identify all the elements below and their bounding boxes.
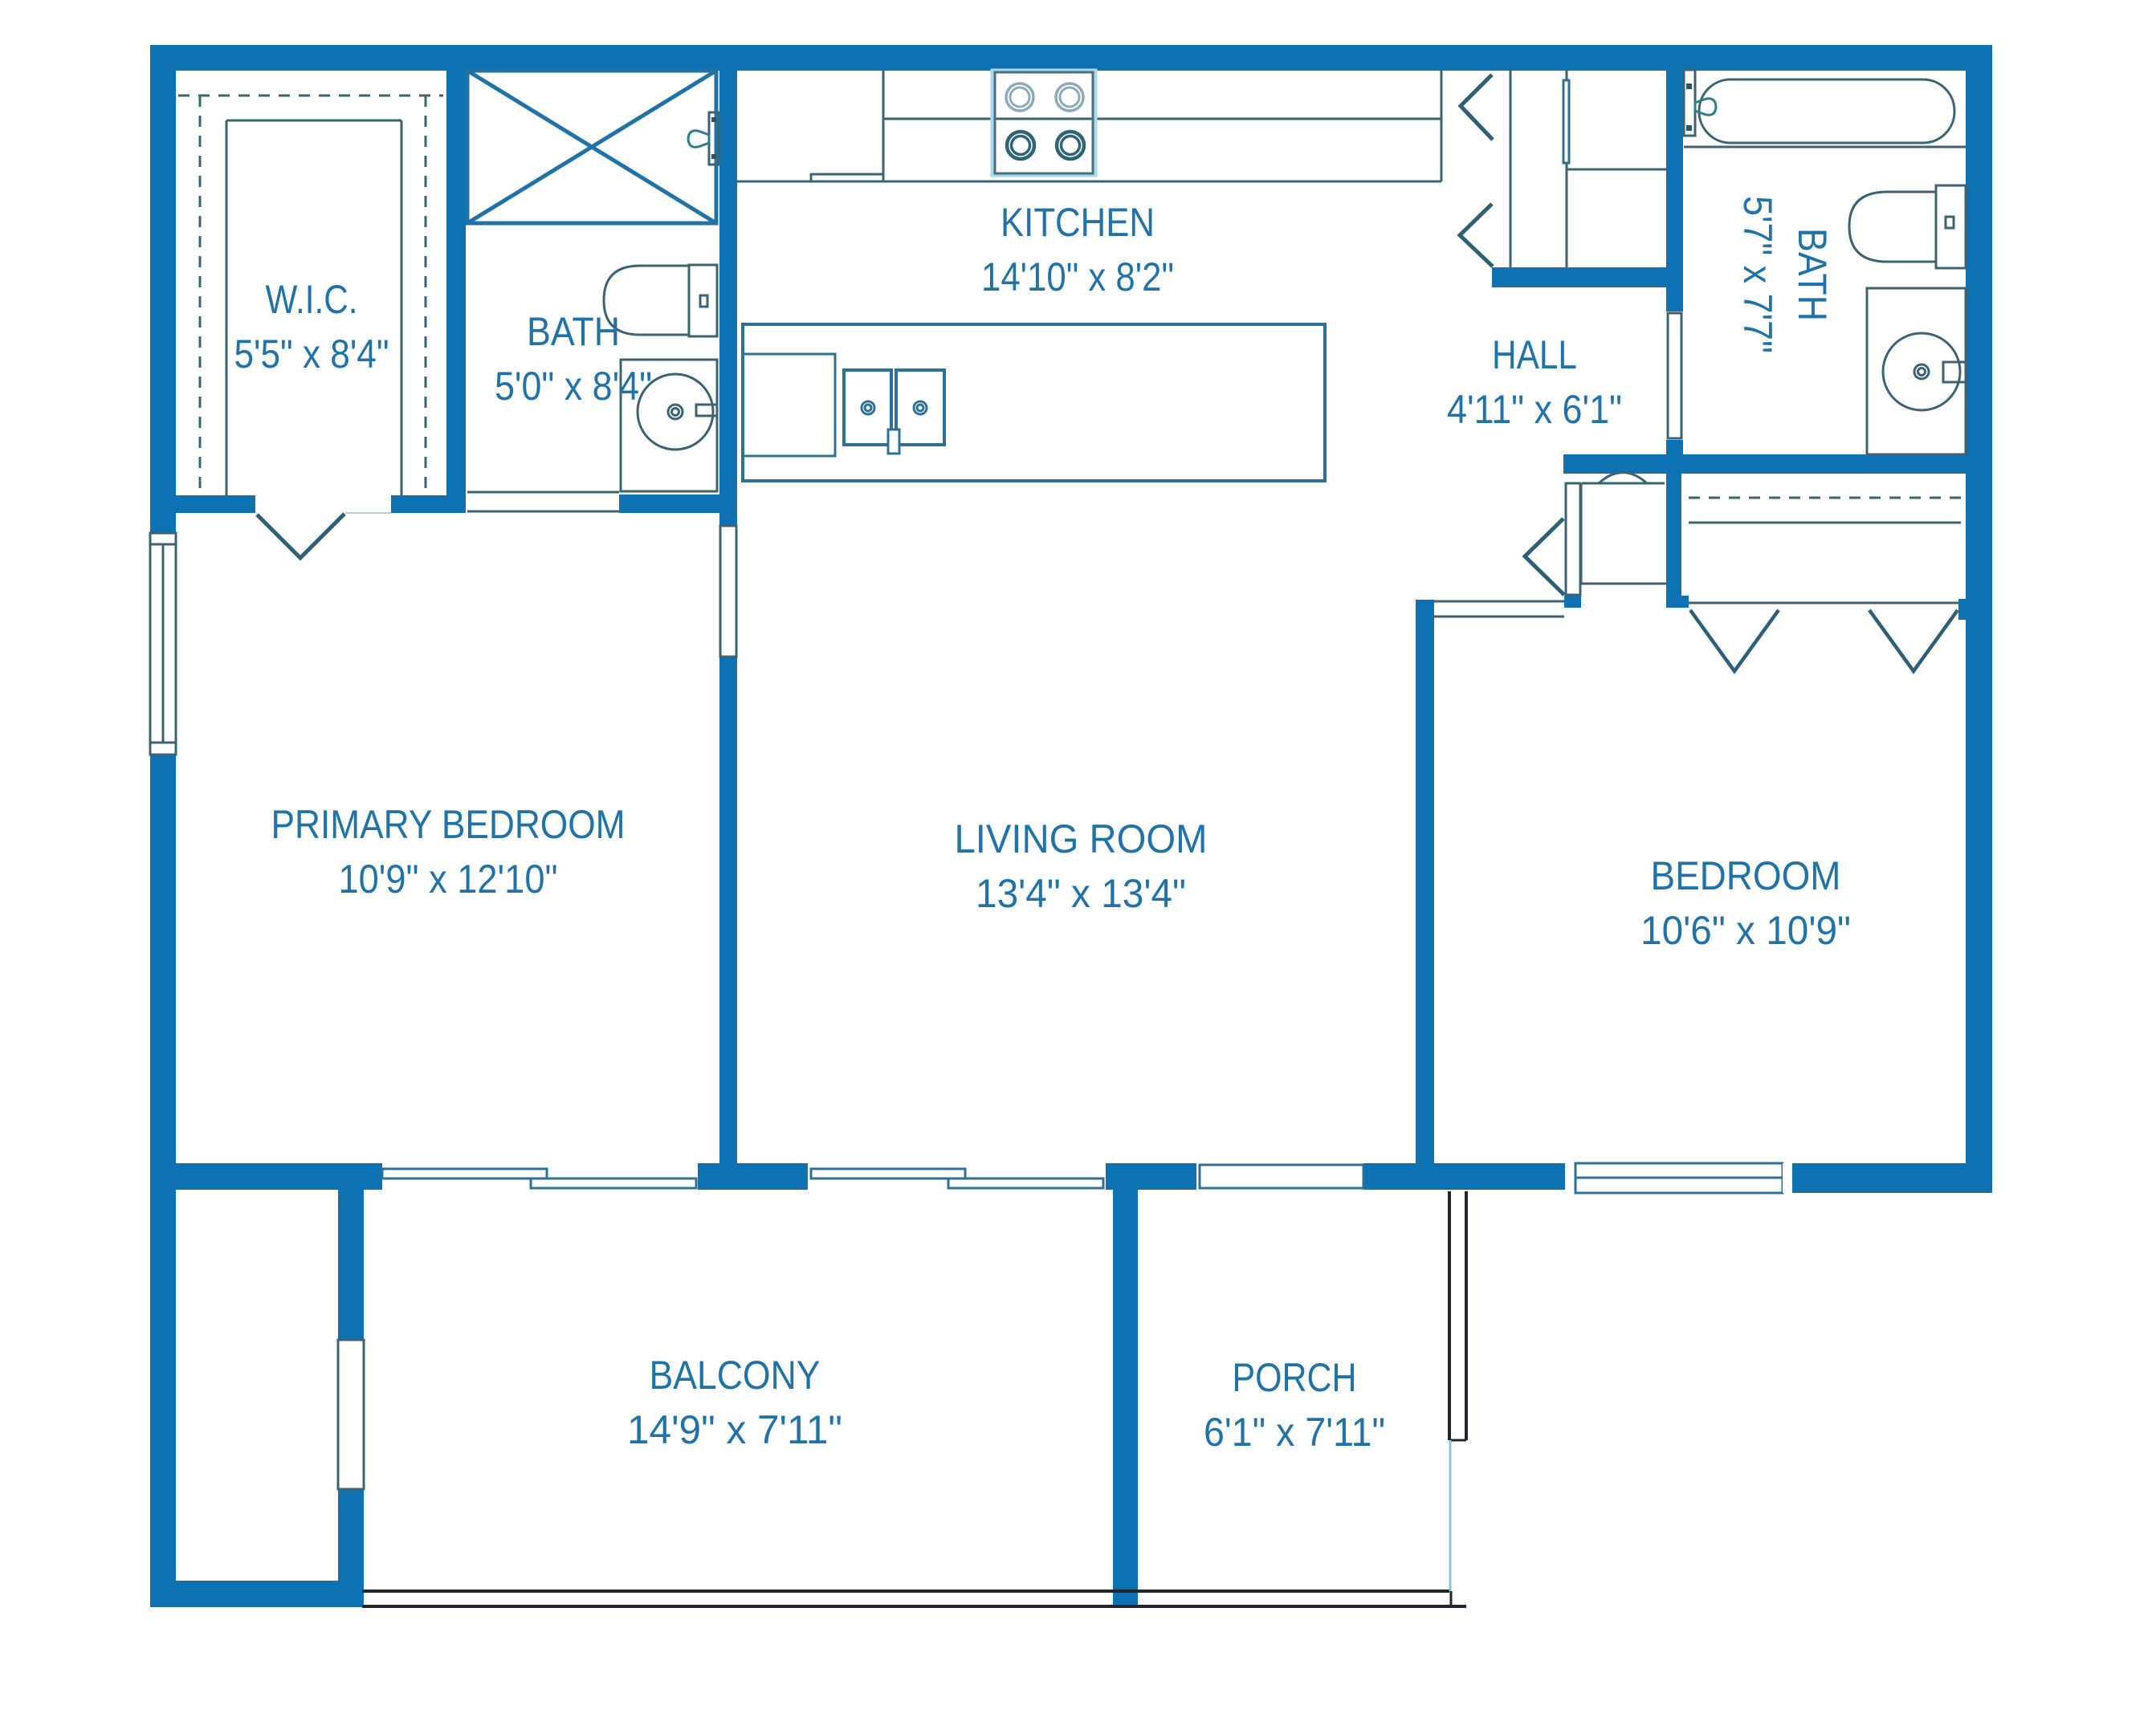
svg-text:PORCH: PORCH bbox=[1233, 1355, 1357, 1400]
svg-text:13'4" x 13'4": 13'4" x 13'4" bbox=[976, 871, 1186, 916]
svg-text:10'9" x 12'10": 10'9" x 12'10" bbox=[339, 857, 558, 902]
svg-text:5'0" x 8'4": 5'0" x 8'4" bbox=[495, 364, 652, 409]
svg-text:14'10" x 8'2": 14'10" x 8'2" bbox=[981, 254, 1174, 299]
svg-text:14'9" x 7'11": 14'9" x 7'11" bbox=[627, 1407, 842, 1452]
svg-text:5'7" x 7'7": 5'7" x 7'7" bbox=[1735, 196, 1780, 353]
svg-text:HALL: HALL bbox=[1492, 332, 1577, 377]
svg-text:BATH: BATH bbox=[1790, 228, 1835, 321]
svg-text:KITCHEN: KITCHEN bbox=[1001, 200, 1155, 245]
svg-text:LIVING ROOM: LIVING ROOM bbox=[955, 816, 1208, 861]
svg-text:PRIMARY BEDROOM: PRIMARY BEDROOM bbox=[271, 802, 626, 847]
svg-text:5'5" x 8'4": 5'5" x 8'4" bbox=[234, 332, 389, 377]
svg-text:BALCONY: BALCONY bbox=[650, 1353, 821, 1398]
svg-text:6'1" x 7'11": 6'1" x 7'11" bbox=[1204, 1410, 1385, 1455]
svg-text:W.I.C.: W.I.C. bbox=[266, 277, 358, 322]
svg-text:10'6" x 10'9": 10'6" x 10'9" bbox=[1640, 908, 1851, 953]
svg-text:BEDROOM: BEDROOM bbox=[1651, 853, 1841, 898]
svg-text:4'11" x 6'1": 4'11" x 6'1" bbox=[1447, 387, 1622, 432]
svg-text:BATH: BATH bbox=[527, 309, 620, 354]
